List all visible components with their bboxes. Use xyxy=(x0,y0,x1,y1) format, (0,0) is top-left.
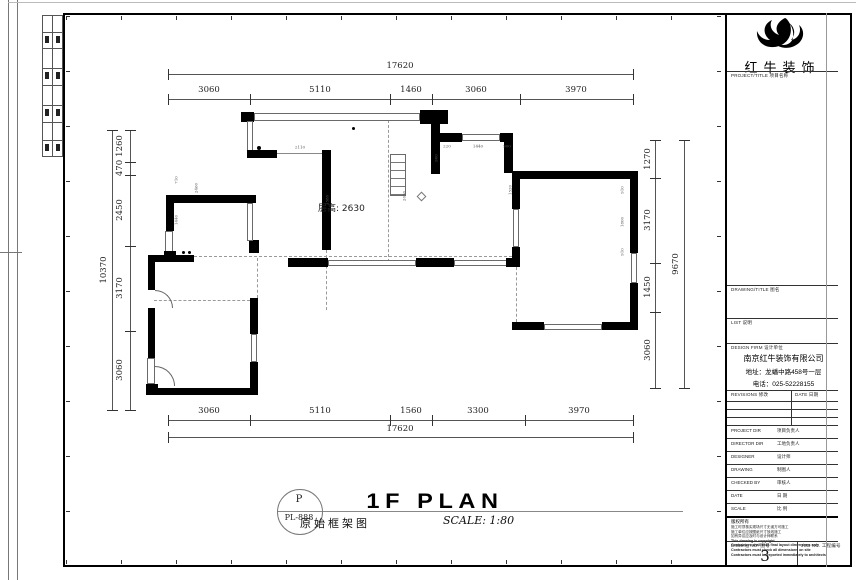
signature-table-line xyxy=(42,105,63,106)
dimension-tick xyxy=(107,130,118,131)
reference-dot xyxy=(352,127,355,130)
personnel-row-label: DRAWING xyxy=(731,467,753,472)
dim-label: 900 xyxy=(434,154,439,162)
dimension-tick xyxy=(650,178,661,179)
personnel-row-value: 审核人 xyxy=(777,480,791,486)
dim-label: 1520 xyxy=(508,185,513,195)
wall-segment xyxy=(416,258,454,267)
dim-label: 3060 xyxy=(198,406,220,416)
wall-segment xyxy=(512,179,520,209)
dim-label: 10370 xyxy=(99,256,109,283)
dim-label: 3970 xyxy=(568,406,590,416)
dashed-line xyxy=(388,120,389,262)
dim-label: 1450 xyxy=(643,276,653,298)
window-opening xyxy=(247,203,253,241)
dim-label: 2630 xyxy=(402,191,407,201)
sheet-outer-line xyxy=(8,2,856,3)
dimension-tick xyxy=(125,331,136,332)
signature-table-line xyxy=(42,48,63,49)
dimension-tick xyxy=(250,415,251,426)
redbull-logo-icon xyxy=(755,17,811,57)
dimension-tick xyxy=(520,94,521,105)
signature-table-line xyxy=(42,32,63,33)
window-opening xyxy=(513,209,519,247)
personnel-row-label: DIRECTOR DIR xyxy=(731,441,763,446)
dimension-tick xyxy=(168,69,169,80)
personnel-row-value: 设计师 xyxy=(777,454,791,460)
dimension-tick xyxy=(125,162,136,163)
wall-segment xyxy=(250,362,258,395)
personnel-row-value: 日 期 xyxy=(777,493,787,499)
wall-segment xyxy=(420,110,448,124)
signature-table-line xyxy=(42,122,63,123)
dimension-tick xyxy=(650,263,661,264)
wall-segment xyxy=(602,322,638,330)
dim-label: 1460 xyxy=(400,85,422,95)
dim-label: 3170 xyxy=(115,277,125,299)
wall-segment xyxy=(512,171,638,179)
wall-segment xyxy=(288,258,328,267)
dimension-tick xyxy=(250,94,251,105)
signature-text-mark xyxy=(45,109,49,116)
dim-label: 1260 xyxy=(115,135,125,157)
dimension-tick xyxy=(168,432,169,443)
dimension-tick xyxy=(650,312,661,313)
dimension-line xyxy=(168,99,633,100)
dim-label: 910 xyxy=(620,248,625,256)
dimension-tick xyxy=(633,69,634,80)
drawing-number: 3 xyxy=(745,547,785,565)
dashed-line xyxy=(257,258,258,298)
window-opening xyxy=(165,231,173,252)
project-title-label: PROJECT/TITLE 项目名称 xyxy=(731,73,788,79)
dimension-tick xyxy=(633,432,634,443)
dim-label: 3060 xyxy=(115,359,125,381)
sheet-outer-line xyxy=(17,0,18,580)
plan-title-en: 1F PLAN xyxy=(317,490,552,514)
dimension-tick xyxy=(432,415,433,426)
firm-name: 南京红牛装饰有限公司 xyxy=(727,353,840,364)
wall-segment xyxy=(250,298,258,334)
personnel-row-label: CHECKED BY xyxy=(731,480,760,485)
dim-label: 470 xyxy=(115,160,125,176)
dim-label: 220 xyxy=(443,144,451,149)
wall-segment xyxy=(440,133,462,142)
drawing-title-label: DRAWING/TITLE 图名 xyxy=(731,287,780,293)
frame-ruler-ticks xyxy=(717,16,721,564)
dim-label: 710 xyxy=(174,176,179,184)
signature-table-line xyxy=(42,85,63,86)
wall-segment xyxy=(148,308,155,358)
personnel-row-value: 制图人 xyxy=(777,467,791,473)
dimension-tick xyxy=(168,415,169,426)
dim-label: 900 xyxy=(503,144,511,149)
window-opening xyxy=(454,260,508,266)
date-col-label: DATE 日期 xyxy=(795,392,818,398)
personnel-row-value: 项目负责人 xyxy=(777,428,800,434)
dim-label: 1560 xyxy=(400,406,422,416)
title-block: 红牛装饰 PROJECT/TITLE 项目名称 DRAWING/TITLE 图名… xyxy=(725,13,838,567)
window-opening xyxy=(544,324,602,330)
firm-phone: 电话：025-52228155 xyxy=(727,378,840,388)
dim-label: 2460 xyxy=(194,183,199,193)
wall-segment xyxy=(148,388,258,395)
frame-ruler-ticks xyxy=(66,560,716,564)
frame-ruler-ticks xyxy=(66,16,716,20)
dimension-tick xyxy=(679,140,690,141)
signature-text-mark xyxy=(56,36,60,43)
signature-text-mark xyxy=(56,144,60,151)
window-opening xyxy=(328,260,416,266)
dimension-tick xyxy=(125,410,136,411)
drawing-sheet: 层高: 2630 1762030605110146030603970306051… xyxy=(0,0,860,580)
revisions-label: REVISIONS 修改 xyxy=(731,392,768,398)
frame-ruler-ticks xyxy=(66,16,70,564)
shaft xyxy=(390,154,406,196)
dimension-line xyxy=(112,130,113,410)
dim-label: 3970 xyxy=(565,85,587,95)
dimension-tick xyxy=(168,94,169,105)
dim-label: 1270 xyxy=(643,148,653,170)
scale-label: SCALE: 1:80 xyxy=(443,514,514,527)
dim-label: 17620 xyxy=(386,424,413,434)
firm-address: 地址：龙蟠中路458号一层 xyxy=(727,366,840,376)
wall-segment xyxy=(249,240,259,253)
personnel-row-value: 比 例 xyxy=(777,506,787,512)
signature-text-mark xyxy=(45,144,49,151)
plan-title-cn: 原始框架图 xyxy=(300,515,370,531)
job-no-label: JOB NO. 工程编号 xyxy=(801,543,841,549)
personnel-row-label: SCALE xyxy=(731,506,746,511)
dimension-tick xyxy=(432,94,433,105)
dim-label: 2450 xyxy=(115,199,125,221)
wall-segment xyxy=(512,322,544,330)
window-opening xyxy=(254,113,420,121)
window-opening xyxy=(251,334,257,362)
dashed-line xyxy=(154,256,512,257)
reference-dot xyxy=(188,251,191,254)
window-opening xyxy=(631,253,637,283)
beam-line xyxy=(277,153,322,154)
dimension-line xyxy=(130,130,131,410)
signature-table-line xyxy=(42,68,63,69)
dimension-line xyxy=(168,74,633,75)
dimension-tick xyxy=(633,415,634,426)
dimension-tick xyxy=(650,140,661,141)
dimension-tick xyxy=(633,94,634,105)
dimension-tick xyxy=(650,388,661,389)
dim-label: 1800 xyxy=(620,217,625,227)
dim-label: 9670 xyxy=(671,253,681,275)
dimension-tick xyxy=(525,415,526,426)
dimension-line xyxy=(168,420,633,421)
dim-label: 5110 xyxy=(309,85,331,95)
wall-segment xyxy=(506,258,520,267)
dim-label: 2110 xyxy=(295,145,305,150)
dimension-tick xyxy=(125,130,136,131)
dimension-line xyxy=(684,140,685,388)
dimension-line xyxy=(168,437,633,438)
window-opening xyxy=(462,134,500,141)
title-block-margin-line xyxy=(826,13,827,567)
dashed-line xyxy=(516,267,517,322)
dim-label: 3060 xyxy=(465,85,487,95)
signature-text-mark xyxy=(56,109,60,116)
wall-segment xyxy=(148,262,155,290)
dimension-tick xyxy=(125,175,136,176)
personnel-row-label: PROJECT DIR xyxy=(731,428,761,433)
dim-label: 5110 xyxy=(309,406,331,416)
dimension-tick xyxy=(390,94,391,105)
window-opening xyxy=(147,358,155,384)
sheet-outer-line xyxy=(8,0,9,580)
wall-segment xyxy=(630,171,638,253)
wall-segment xyxy=(166,195,256,203)
reference-dot xyxy=(257,146,261,150)
dim-label: 1440 xyxy=(174,215,179,225)
dim-label: 3060 xyxy=(643,339,653,361)
list-label: LIST 说明 xyxy=(731,320,752,326)
dimension-tick xyxy=(679,388,690,389)
signature-text-mark xyxy=(45,72,49,79)
dim-label: 1580 xyxy=(325,195,330,205)
dimension-tick xyxy=(125,246,136,247)
wall-segment xyxy=(247,150,277,158)
window-opening xyxy=(247,121,253,151)
personnel-row-label: DESIGNER xyxy=(731,454,755,459)
dim-label: 910 xyxy=(620,186,625,194)
dim-label: 1440 xyxy=(473,144,483,149)
dim-label: 3060 xyxy=(198,85,220,95)
dim-label: 17620 xyxy=(386,61,413,71)
personnel-row-value: 工地负责人 xyxy=(777,441,800,447)
signature-text-mark xyxy=(56,72,60,79)
dim-label: 3170 xyxy=(643,209,653,231)
wall-segment xyxy=(148,255,194,262)
sheet-registration-mark xyxy=(0,252,22,253)
signature-text-mark xyxy=(45,36,49,43)
personnel-row-label: DATE xyxy=(731,493,743,498)
dim-label: 3300 xyxy=(467,406,489,416)
wall-segment xyxy=(431,124,440,174)
signature-table-divider xyxy=(52,15,53,157)
dimension-tick xyxy=(107,410,118,411)
reference-dot xyxy=(182,251,185,254)
design-firm-label: DESIGN FIRM 设计单位 xyxy=(731,345,783,351)
plan-code-letter: P xyxy=(277,494,321,505)
signature-table-line xyxy=(42,140,63,141)
wall-segment xyxy=(504,133,513,173)
